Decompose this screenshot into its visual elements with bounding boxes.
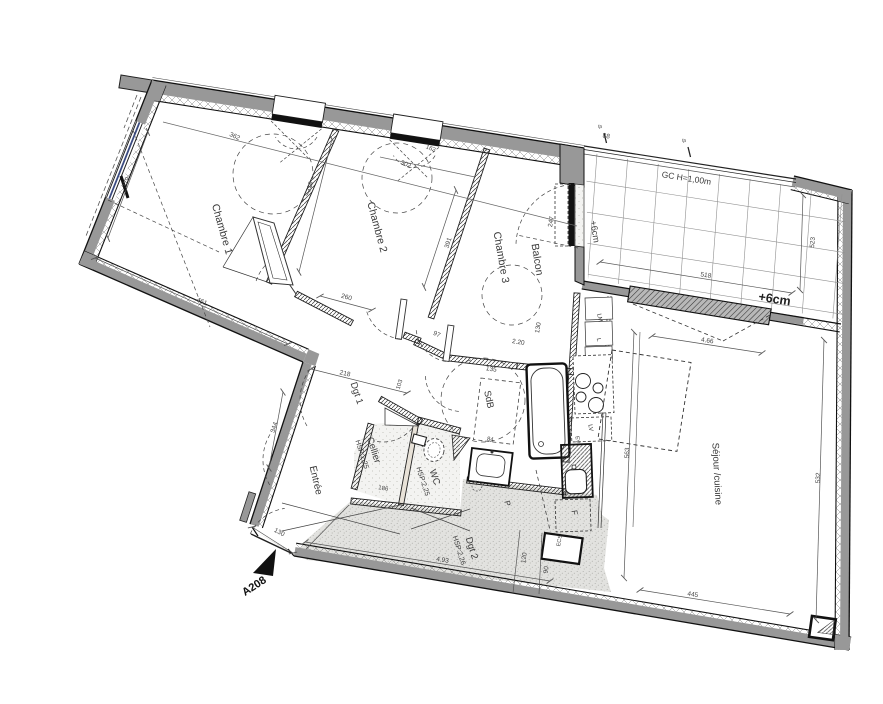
svg-text:88: 88 <box>602 132 611 140</box>
svg-text:563: 563 <box>624 447 632 459</box>
svg-text:90: 90 <box>543 565 551 573</box>
svg-text:532: 532 <box>815 472 823 484</box>
svg-text:LV: LV <box>586 424 593 432</box>
svg-text:523: 523 <box>809 236 817 248</box>
svg-text:120: 120 <box>520 552 528 564</box>
